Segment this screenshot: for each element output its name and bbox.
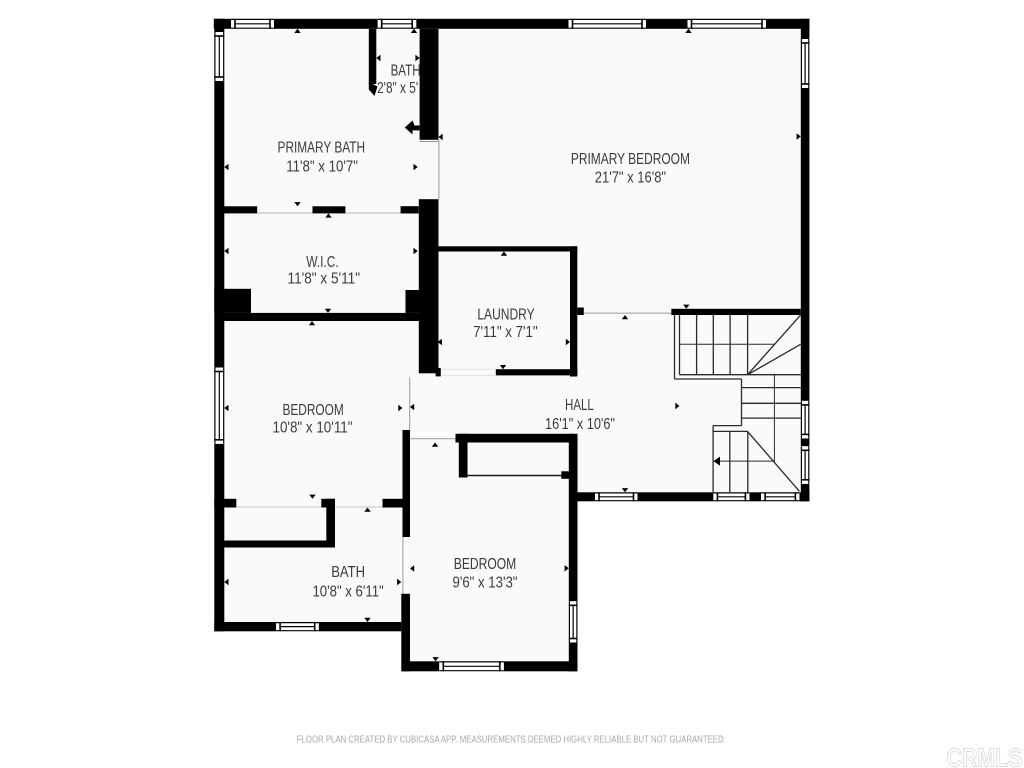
svg-text:2'8" x 5': 2'8" x 5' bbox=[377, 80, 418, 97]
svg-text:10'8" x 6'11": 10'8" x 6'11" bbox=[312, 584, 383, 601]
svg-text:HALL: HALL bbox=[565, 397, 594, 414]
svg-text:BEDROOM: BEDROOM bbox=[282, 402, 343, 419]
svg-text:BATH: BATH bbox=[331, 564, 365, 581]
svg-text:10'8" x 10'11": 10'8" x 10'11" bbox=[273, 420, 353, 437]
svg-text:W.I.C.: W.I.C. bbox=[306, 254, 339, 271]
svg-text:BATH: BATH bbox=[391, 63, 421, 80]
svg-text:21'7" x 16'8": 21'7" x 16'8" bbox=[595, 170, 666, 187]
svg-text:BEDROOM: BEDROOM bbox=[454, 556, 517, 573]
svg-text:16'1" x 10'6": 16'1" x 10'6" bbox=[545, 416, 615, 433]
svg-text:11'8" x 5'11": 11'8" x 5'11" bbox=[288, 270, 361, 287]
svg-text:7'11" x 7'1": 7'11" x 7'1" bbox=[473, 324, 538, 341]
svg-text:LAUNDRY: LAUNDRY bbox=[477, 307, 534, 324]
svg-text:9'6" x 13'3": 9'6" x 13'3" bbox=[453, 574, 518, 591]
svg-text:FLOOR PLAN CREATED BY CUBICASA: FLOOR PLAN CREATED BY CUBICASA APP. MEAS… bbox=[297, 735, 726, 746]
svg-text:11'8" x 10'7": 11'8" x 10'7" bbox=[286, 158, 358, 175]
svg-text:CRMLS: CRMLS bbox=[947, 743, 1023, 768]
svg-text:PRIMARY BATH: PRIMARY BATH bbox=[278, 140, 366, 157]
svg-text:PRIMARY BEDROOM: PRIMARY BEDROOM bbox=[571, 151, 690, 168]
